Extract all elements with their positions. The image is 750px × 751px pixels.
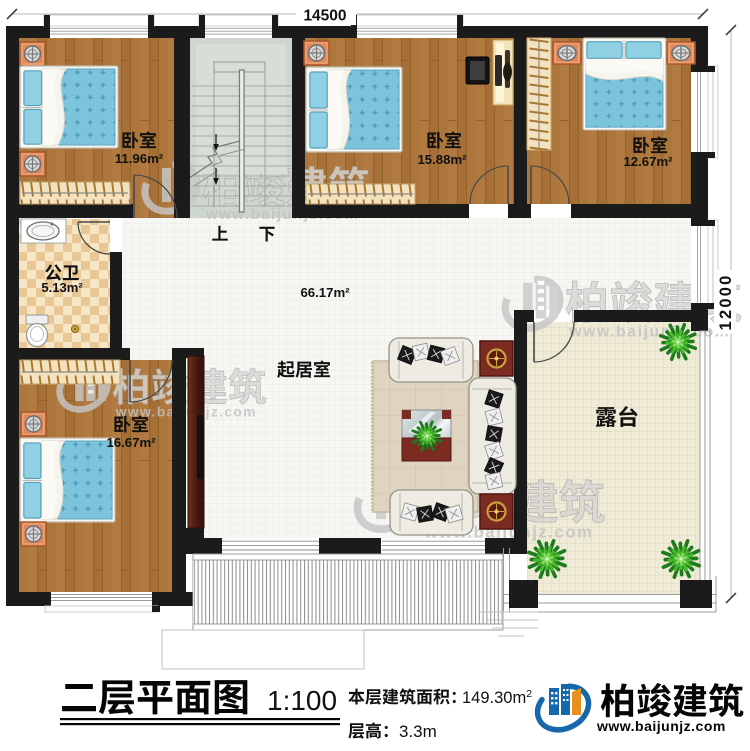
svg-text:11.96m²: 11.96m² (115, 151, 164, 166)
svg-text:14500: 14500 (303, 8, 346, 25)
svg-text:149.30m2: 149.30m2 (462, 688, 532, 707)
svg-text:12000: 12000 (717, 274, 735, 331)
svg-text:3.3m: 3.3m (399, 722, 437, 741)
svg-text:16.67m²: 16.67m² (106, 435, 156, 450)
svg-text:15.88m²: 15.88m² (417, 152, 467, 167)
svg-text:12.67m²: 12.67m² (623, 154, 673, 169)
svg-text:www.baijunjz.com: www.baijunjz.com (596, 718, 726, 734)
svg-text:5.13m²: 5.13m² (41, 280, 83, 295)
svg-text:1:100: 1:100 (267, 685, 337, 716)
svg-text:66.17m²: 66.17m² (300, 285, 350, 300)
